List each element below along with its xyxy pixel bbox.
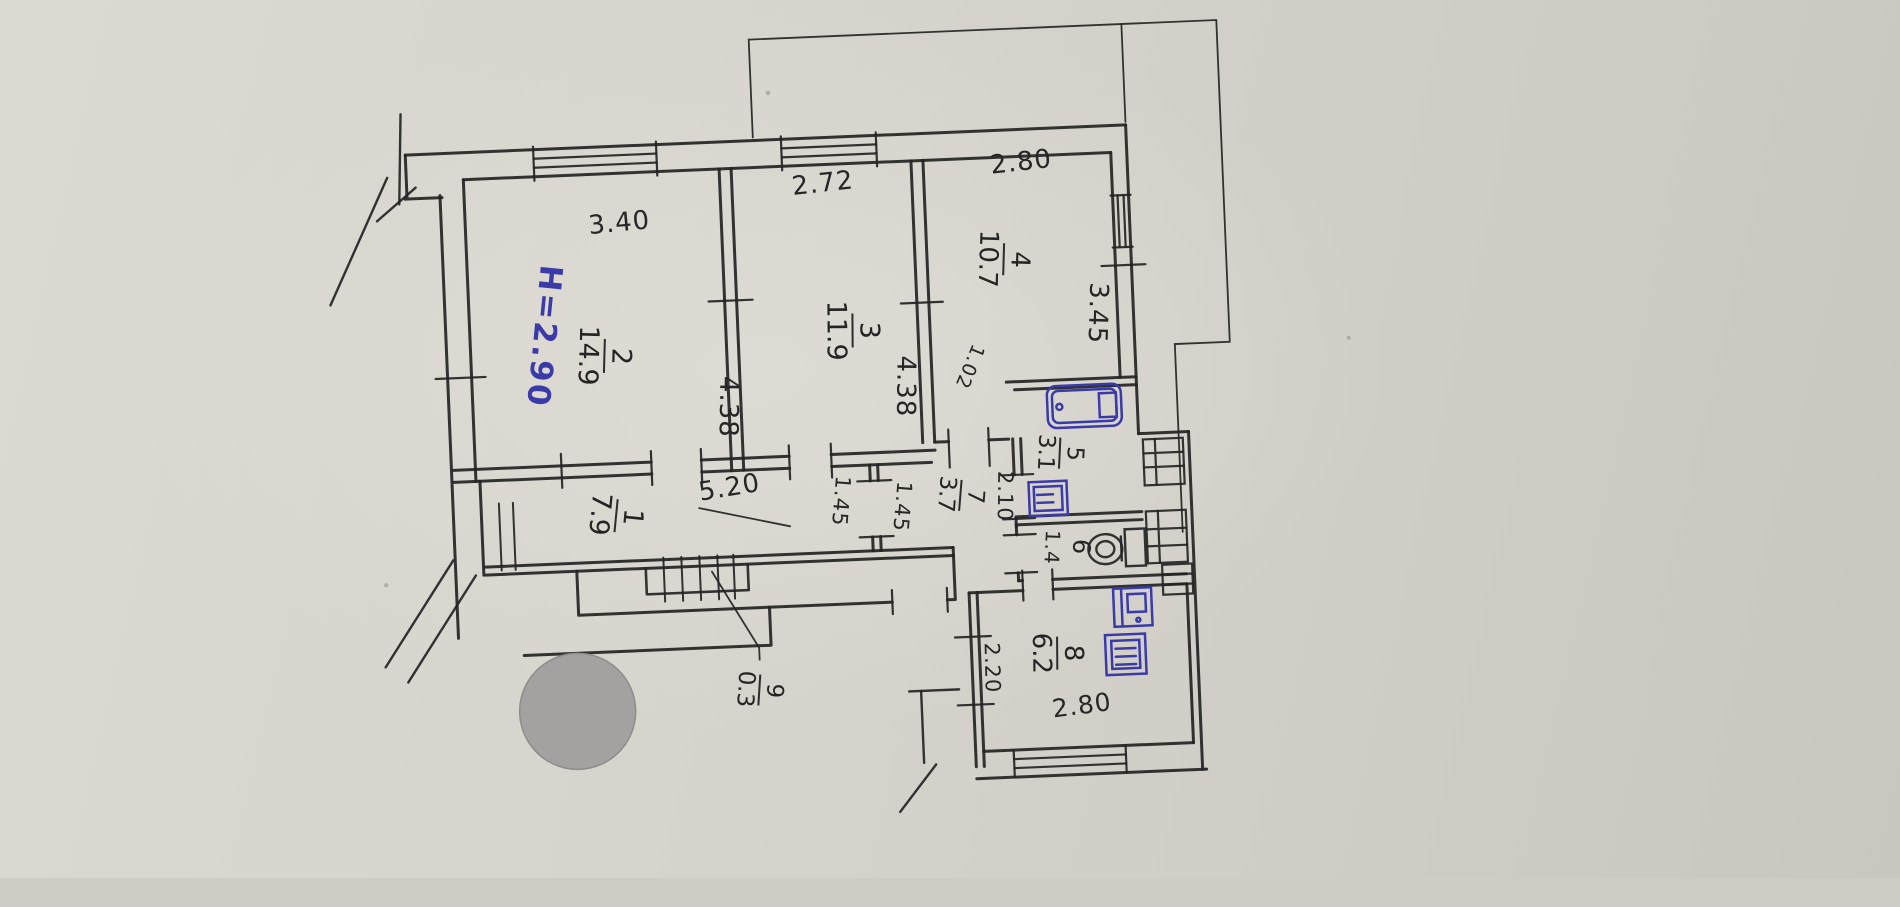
door-openings [650,426,1053,624]
bathtub-icon [1046,383,1122,428]
room-number: 4 [1002,243,1033,276]
entrance-door-leaf [895,689,964,812]
room-8-label: 8 6.2 [1027,632,1086,674]
room-1-label: 1 7.9 [583,491,648,540]
room-area: 3.7 [932,475,961,514]
room-area: 0.3 [731,670,759,708]
room-number: 1 [613,499,647,535]
room-number: 8 [1056,637,1086,670]
window-room2 [533,154,656,168]
door-wc [1004,534,1038,573]
room-7-label: 7 3.7 [932,475,988,516]
room-6-label: 6 [1067,538,1096,556]
break-mark-top [396,114,405,204]
closet-9 [645,554,749,602]
room-4-label: 4 10.7 [973,229,1034,289]
dim-1-4: 1.4 [1039,529,1065,565]
redaction-stamp-circle [517,651,638,772]
room-area: 7.9 [583,491,617,537]
room-2-label: 2 14.9 [572,325,635,387]
kitchen-sink-icon [1105,634,1147,676]
room-area: 14.9 [572,325,604,386]
room-9-label: 9 0.3 [731,670,786,710]
window-room3 [781,144,876,157]
dim-2-10: 2.10 [993,471,1018,522]
building-outline-join [1121,24,1125,122]
room-area: 10.7 [973,229,1004,288]
door-room4-passage [948,428,990,468]
window-kitchen [1014,754,1126,768]
door-kitchen [1022,569,1053,600]
window-room4 [1118,195,1126,247]
dim-2-20: 2.20 [980,642,1005,693]
break-mark-bottom [404,576,480,683]
door-entrance-opening [892,588,948,614]
dim-3-40: 3.40 [587,205,651,241]
floor-plan: 1 7.9 2 14.9 3 11.9 4 10.7 5 3.1 6 7 3.7… [0,0,1900,907]
room-area: 11.9 [821,300,851,360]
floor-plan-drawing [0,0,1900,907]
door-room3 [789,444,832,480]
room-number: 7 [958,480,987,513]
vent-shafts [1143,438,1193,596]
dim-3-45: 3.45 [1082,282,1114,345]
room-number: 5 [1058,438,1086,470]
room-number: 3 [851,314,882,347]
room-3-label: 3 11.9 [821,300,883,361]
room-number: 9 [757,674,786,706]
stove-icon [1113,587,1153,627]
dim-1-45-left: 1.45 [827,475,855,528]
dim-4-38-right: 4.38 [890,355,921,417]
room-area: 6.2 [1027,633,1056,675]
washbasin-icon [1028,481,1067,517]
room-number: 2 [603,339,635,373]
dim-4-38-left: 4.38 [713,376,744,438]
room-area: 3.1 [1032,434,1060,472]
room-5-label: 5 3.1 [1032,434,1086,473]
dim-1-45-right: 1.45 [888,480,916,533]
door-room2 [651,449,702,485]
toilet-icon [1088,528,1146,567]
